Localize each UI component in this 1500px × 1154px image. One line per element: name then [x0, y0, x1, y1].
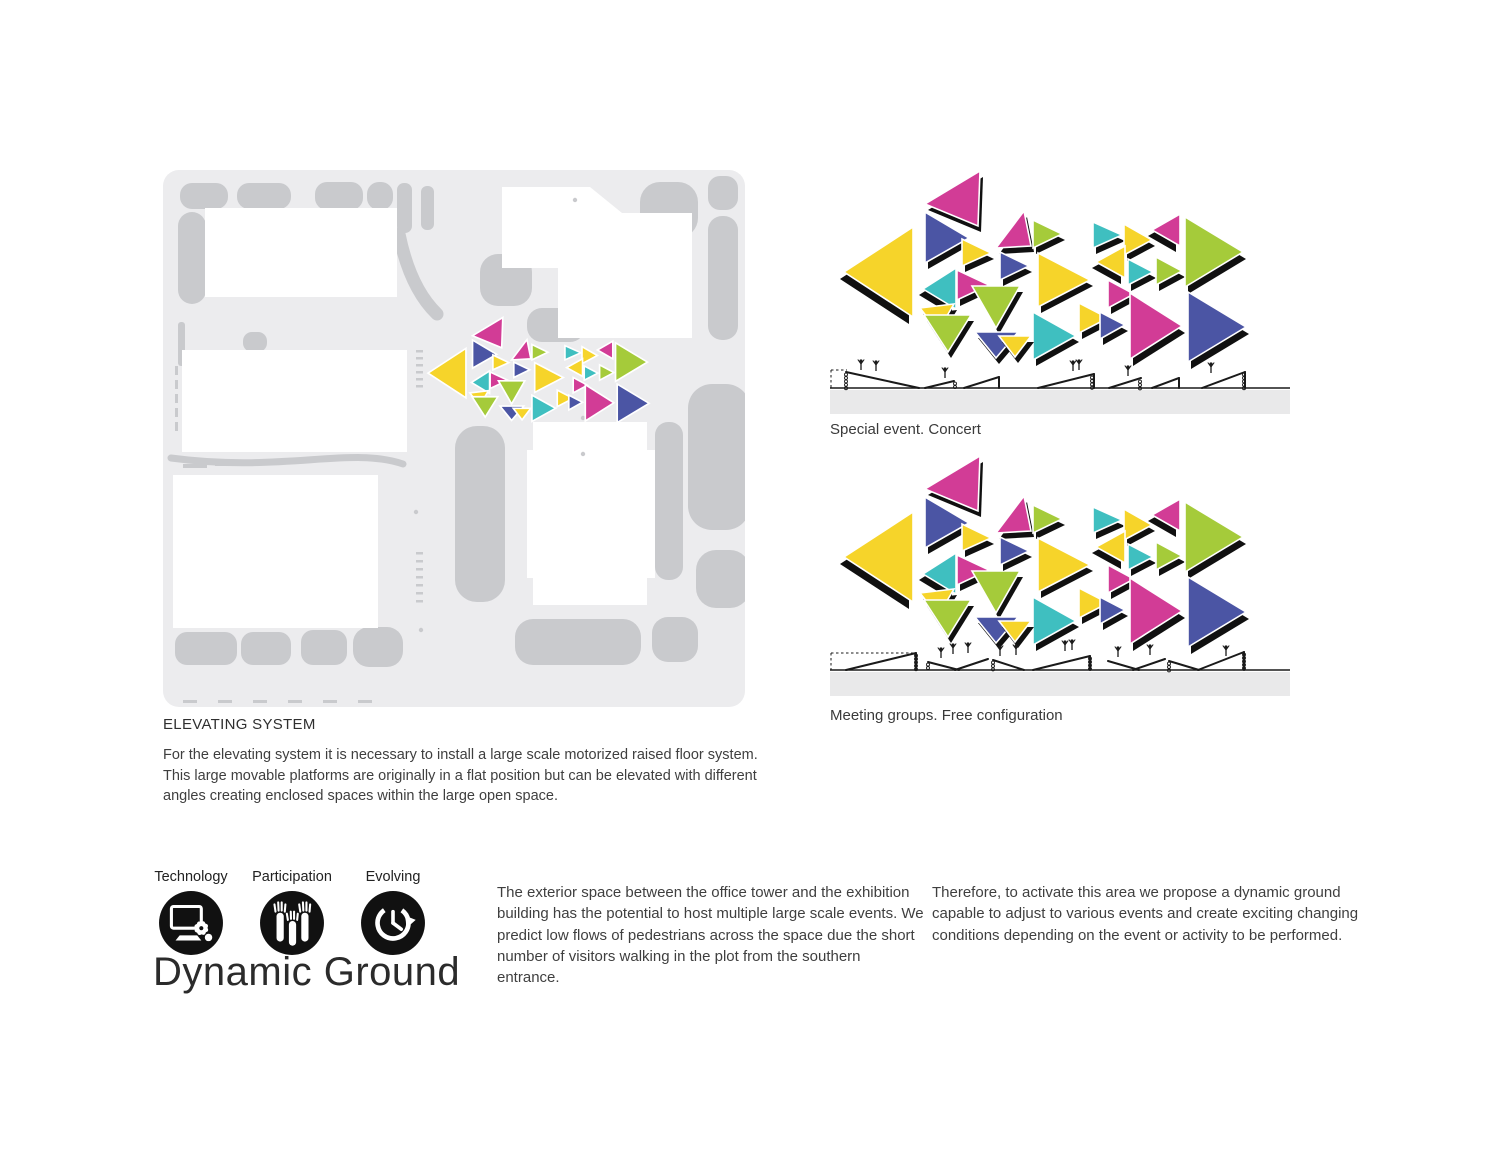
diagram-meeting-groups: [828, 445, 1298, 701]
diagram-special-event-concert: [828, 160, 1298, 416]
participation-block: Participation: [247, 869, 337, 956]
elevating-system-title: ELEVATING SYSTEM: [163, 716, 316, 733]
presentation-board: Special event. Concert Meeting groups. F…: [0, 0, 1500, 1154]
branding-icons-row: Technology Participation: [146, 869, 438, 956]
technology-monitor-gear-icon: [158, 890, 224, 956]
participation-label: Participation: [252, 869, 332, 885]
evolving-label: Evolving: [366, 869, 421, 885]
evolving-block: Evolving: [348, 869, 438, 956]
site-plan-drawing: [163, 170, 745, 710]
technology-block: Technology: [146, 869, 236, 956]
caption-meeting-groups: Meeting groups. Free configuration: [830, 707, 1063, 724]
participation-raised-hands-icon: [259, 890, 325, 956]
technology-label: Technology: [154, 869, 227, 885]
elevating-system-body: For the elevating system it is necessary…: [163, 745, 763, 807]
paragraph-exterior-space: The exterior space between the office to…: [497, 882, 925, 988]
caption-special-event: Special event. Concert: [830, 421, 981, 438]
brand-title: Dynamic Ground: [153, 950, 460, 995]
paragraph-dynamic-ground: Therefore, to activate this area we prop…: [932, 882, 1362, 946]
evolving-clock-arrow-icon: [360, 890, 426, 956]
